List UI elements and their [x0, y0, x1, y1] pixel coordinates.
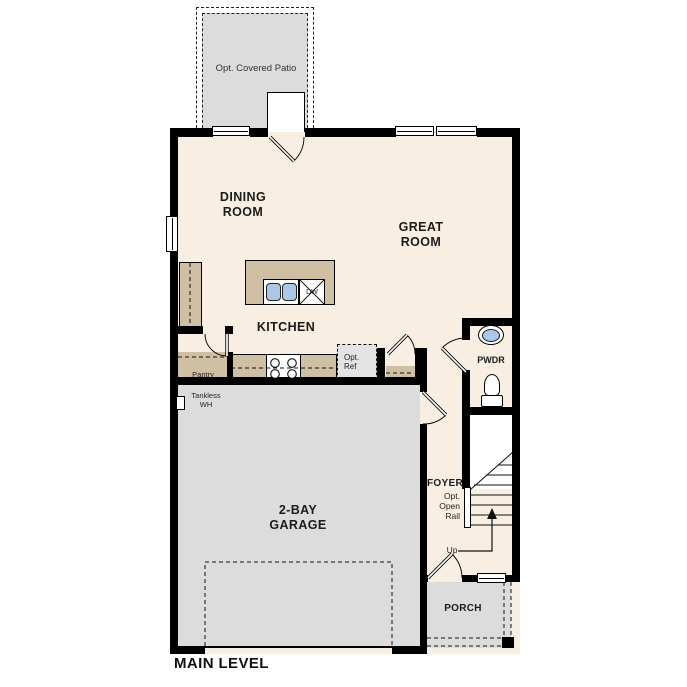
wall-frontdoor-a	[420, 575, 428, 582]
dishwasher-label: DW	[306, 289, 318, 296]
wall-frontdoor-c	[506, 575, 520, 582]
foyer-label: FOYER	[420, 478, 470, 490]
window-great-top-1	[395, 126, 434, 136]
wall-powder-top	[462, 318, 520, 326]
plan-title: MAIN LEVEL	[174, 655, 314, 672]
window-porch	[477, 573, 506, 583]
tankless-wh-label: Tankless WH	[187, 391, 225, 409]
wall-frontdoor-b	[462, 575, 478, 582]
kitchen-label: KITCHEN	[246, 320, 326, 335]
wall-bottom-2	[392, 646, 427, 654]
wall-closet-right	[415, 348, 427, 384]
toilet-bowl	[484, 374, 500, 396]
porch-floor	[427, 582, 511, 648]
wall-pantry-right	[227, 352, 233, 380]
wall-top-3	[305, 128, 396, 137]
wall-closet-left	[377, 348, 385, 384]
dining-room-label: DINING ROOM	[212, 190, 274, 220]
sink-basin-left	[266, 283, 281, 301]
sink-basin-right	[282, 283, 297, 301]
powder-label: PWDR	[470, 355, 512, 365]
wall-pantry-top-b	[225, 326, 233, 334]
wall-right	[512, 128, 520, 582]
pantry-label: Pantry	[180, 370, 226, 379]
wall-porch-left	[420, 582, 427, 646]
wall-left	[170, 128, 178, 654]
window-dining-top	[212, 126, 250, 136]
wall-pantry-top-a	[170, 326, 203, 334]
patio-door-landing	[267, 92, 305, 132]
stairs-upper-blank	[470, 415, 513, 489]
powder-sink-basin	[482, 329, 500, 342]
up-label: Up	[443, 545, 461, 555]
window-great-top-2	[436, 126, 477, 136]
garage-label: 2-BAY GARAGE	[262, 503, 334, 533]
tankless-water-heater	[176, 396, 185, 410]
wall-top-2	[250, 128, 268, 137]
stair-open-rail	[464, 487, 471, 528]
porch-post	[502, 637, 514, 648]
toilet-tank	[481, 395, 503, 407]
wall-powder-bottom	[462, 407, 513, 415]
opt-open-rail-label: Opt. Open Rail	[424, 491, 460, 521]
garage-door-sill	[205, 646, 392, 648]
opt-ref-label: Opt. Ref	[344, 353, 370, 372]
patio-label: Opt. Covered Patio	[196, 63, 316, 74]
dining-cabinet	[179, 262, 202, 327]
opt-refrigerator: Opt. Ref	[337, 344, 377, 380]
wall-bottom-1	[170, 646, 205, 654]
window-dining-left	[166, 216, 178, 252]
wall-powder-left-a	[462, 318, 470, 340]
dishwasher: DW	[299, 279, 325, 305]
porch-label: PORCH	[435, 603, 491, 615]
great-room-label: GREAT ROOM	[390, 220, 452, 250]
floor-plan: DW Opt. Ref	[0, 0, 687, 687]
